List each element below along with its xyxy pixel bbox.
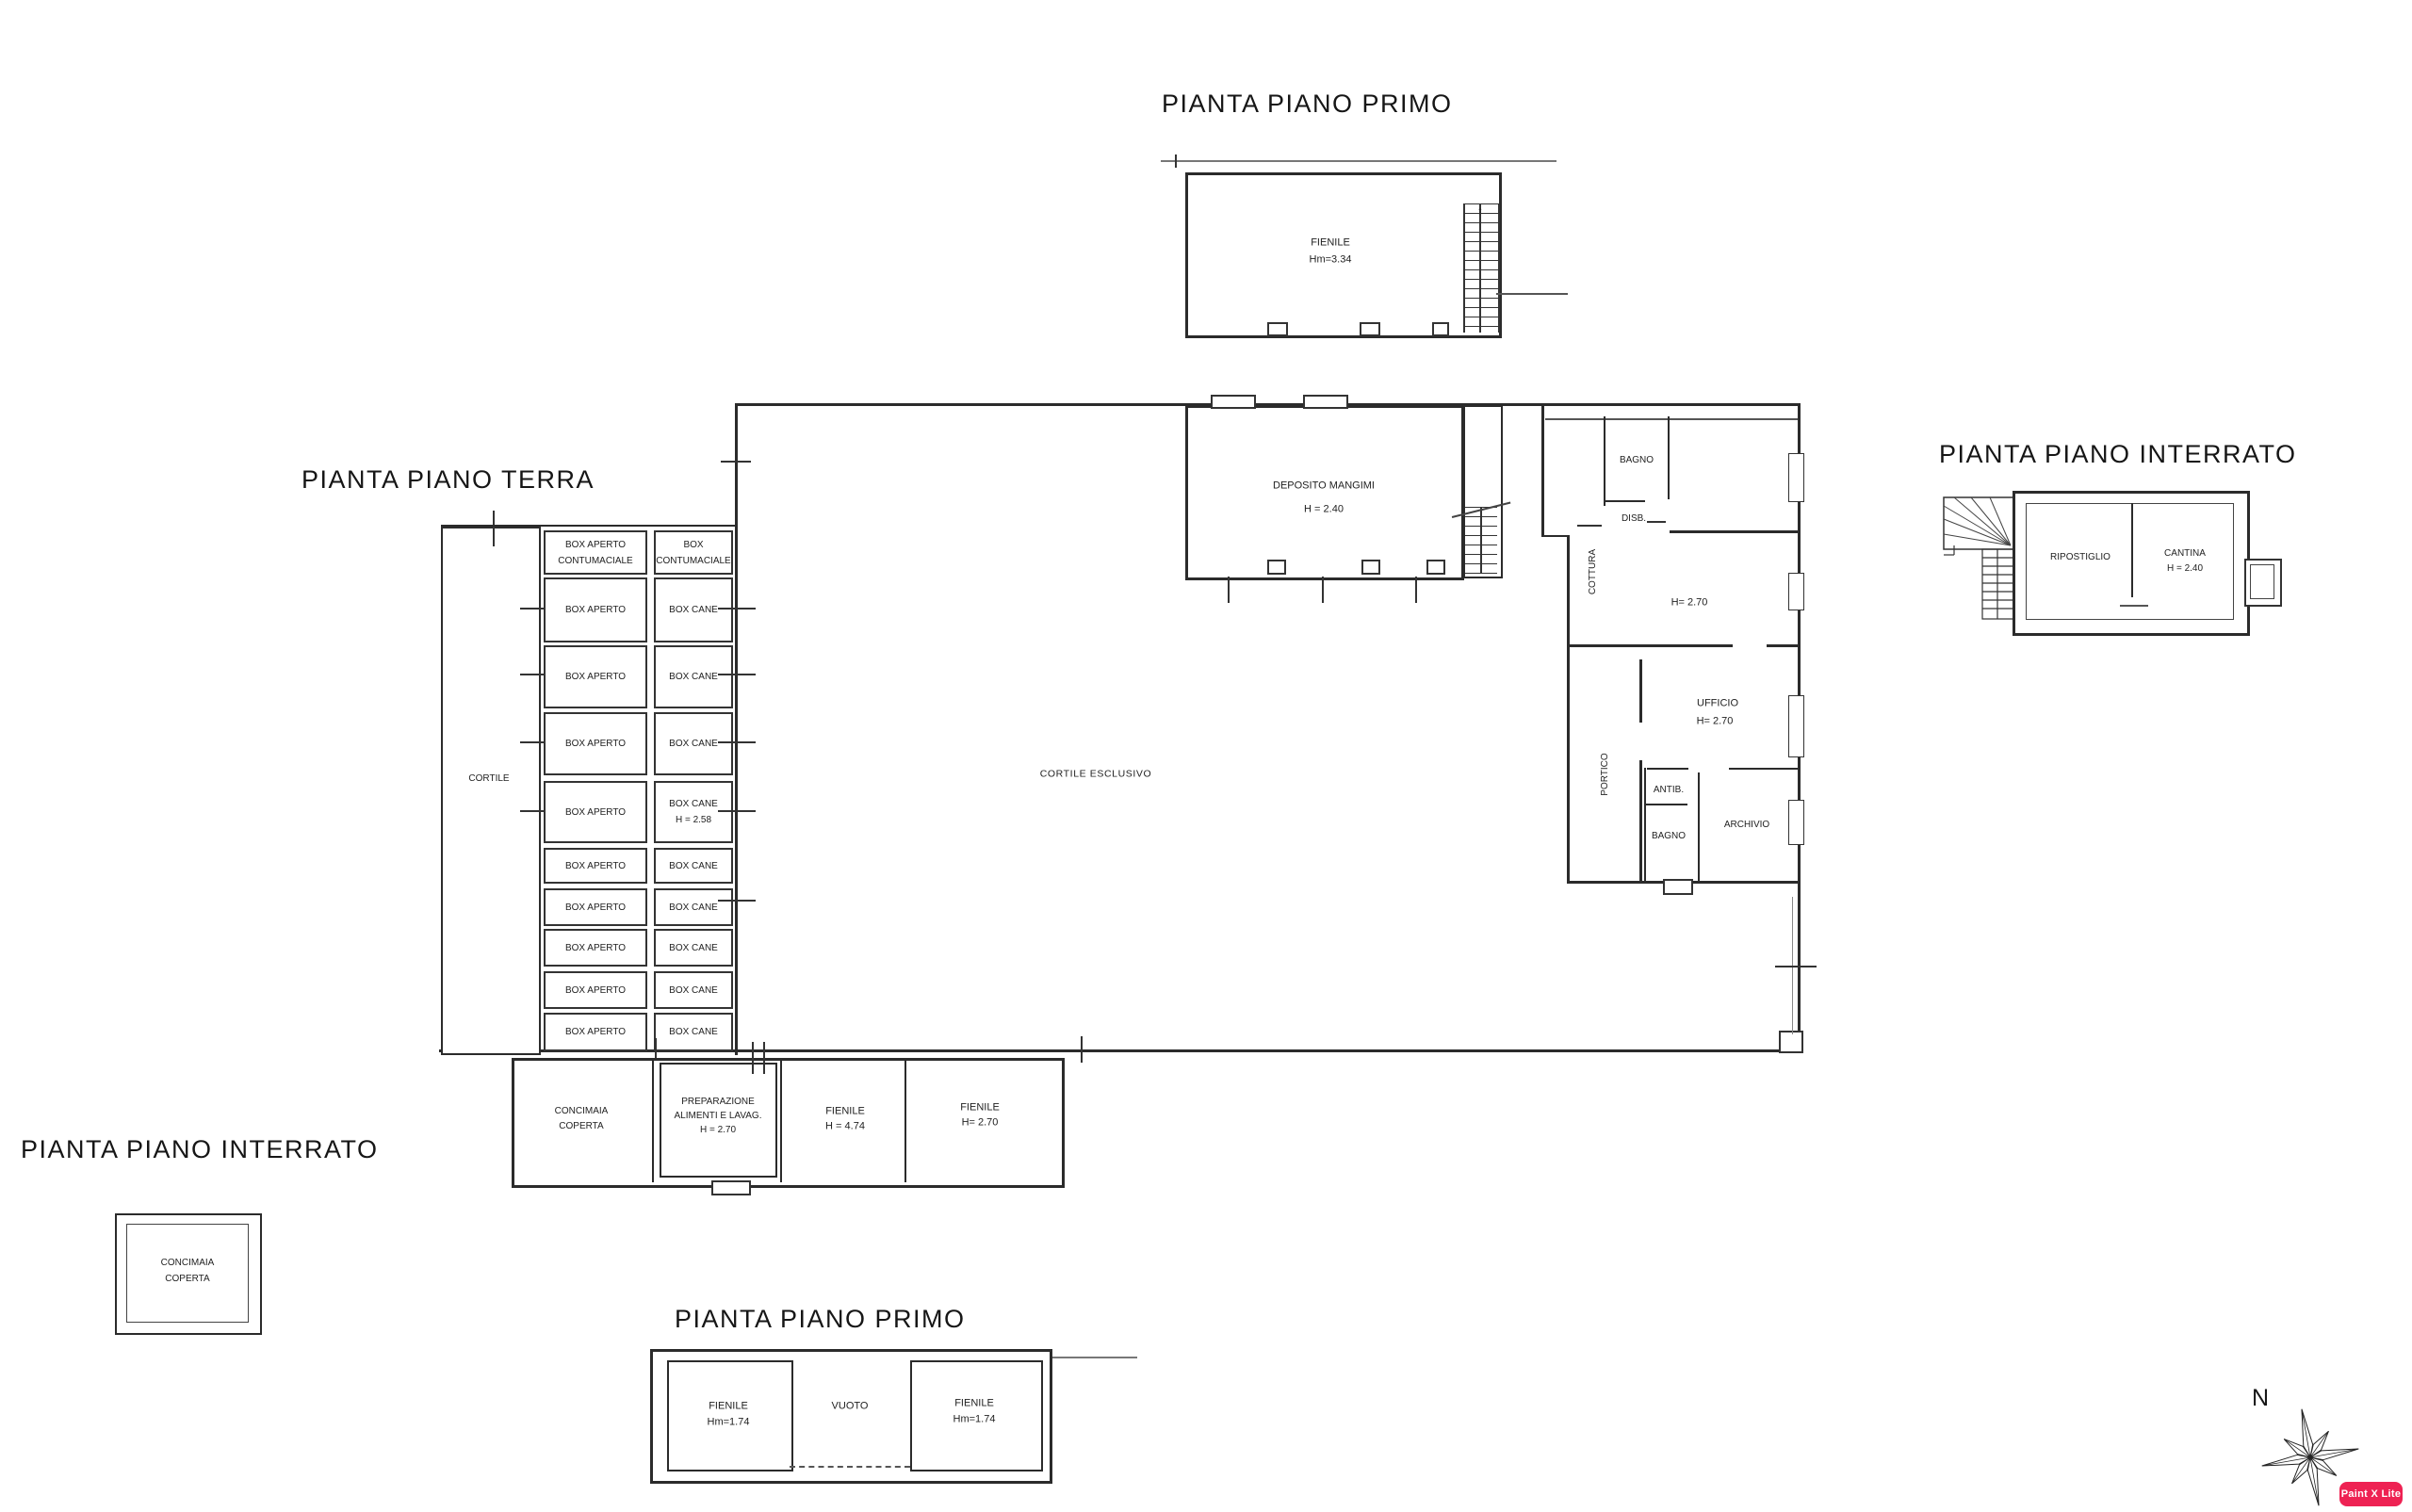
- title-bottom-piano-primo: PIANTA PIANO PRIMO: [675, 1305, 966, 1334]
- room-label: FIENILE: [960, 1100, 1000, 1114]
- wall-south: [650, 1481, 1052, 1484]
- title-piano-terra: PIANTA PIANO TERRA: [301, 465, 595, 495]
- wall-west: [650, 1349, 653, 1484]
- stall-row: BOX APERTO BOX CANE: [544, 712, 733, 775]
- box-cane-room: BOX CANE: [654, 1013, 733, 1051]
- wall-archivio-west: [1698, 772, 1700, 883]
- box-aperto-room: BOX APERTO: [544, 781, 647, 843]
- room-label: COTTURA: [1587, 549, 1600, 594]
- room-height-label: Hm=1.74: [953, 1412, 996, 1426]
- pilaster: [1432, 322, 1449, 336]
- wall-divider: [780, 1058, 782, 1182]
- vuoto-dashed-edge: [790, 1466, 910, 1468]
- wall-stalls-north: [441, 525, 735, 527]
- box-cane-room: BOXCONTUMACIALE: [654, 530, 733, 575]
- room-height-label: H= 2.70: [1697, 714, 1734, 728]
- room-label: CONCIMAIA: [161, 1257, 215, 1270]
- room-label: DISB.: [1622, 512, 1646, 526]
- stall-row: BOX APERTO BOX CANE: [544, 929, 733, 967]
- box-aperto-room: BOX APERTO: [544, 971, 647, 1009]
- box-aperto-room: BOX APERTO: [544, 1013, 647, 1051]
- wall-bagno-east: [1668, 416, 1670, 499]
- wall-portico-east-a: [1639, 659, 1642, 723]
- door-line: [2120, 605, 2148, 607]
- pilaster: [1211, 395, 1256, 409]
- window-tick: [718, 608, 756, 610]
- window-tick: [763, 1042, 765, 1074]
- room-height-label: Hm=1.74: [708, 1415, 750, 1429]
- stall-row: BOX APERTO BOX CANE: [544, 577, 733, 642]
- room-height-label: H = 4.74: [825, 1119, 865, 1133]
- stall-row: BOX APERTOCONTUMACIALE BOXCONTUMACIALE: [544, 530, 733, 575]
- window-tick: [520, 674, 545, 675]
- room-label: ANTIB.: [1654, 784, 1684, 797]
- room-label: COPERTA: [165, 1273, 209, 1286]
- box-cane-room: BOX CANE: [654, 712, 733, 775]
- room-label: FIENILE: [709, 1399, 748, 1413]
- stall-row: BOX APERTO BOX CANE: [544, 645, 733, 708]
- reference-tick: [1175, 154, 1177, 168]
- room-label: PORTICO: [1599, 753, 1612, 795]
- box-aperto-room: BOX APERTO: [544, 929, 647, 967]
- wall-extension-line: [1496, 293, 1568, 295]
- pilaster: [1267, 560, 1286, 575]
- pilaster: [1361, 560, 1380, 575]
- box-aperto-room: BOX APERTO: [544, 888, 647, 926]
- stall-row: BOX APERTO BOX CANE: [544, 888, 733, 926]
- wall-room-ne-south: [1670, 530, 1800, 533]
- window-tick: [718, 900, 756, 902]
- window-tick: [718, 810, 756, 812]
- wall-antib-north: [1647, 768, 1688, 770]
- floor-plan-sheet: PIANTA PIANO PRIMO PIANTA PIANO TERRA PI…: [0, 0, 2412, 1512]
- staircase-midline: [1479, 203, 1481, 333]
- room-label: COPERTA: [559, 1120, 603, 1133]
- window-tick: [520, 741, 545, 743]
- wall-bagno-south: [1604, 500, 1645, 502]
- window-tick: [718, 674, 756, 675]
- room-height-label: H = 2.40: [1304, 502, 1344, 516]
- window: [1788, 695, 1804, 757]
- wall-divider: [652, 1058, 654, 1182]
- stall-row: BOX APERTO BOX CANEH = 2.58: [544, 781, 733, 843]
- wall-portico-east-b: [1639, 760, 1642, 883]
- wall-wing-inner-north: [1545, 418, 1798, 420]
- room-label: FIENILE: [825, 1104, 865, 1118]
- pilaster: [1360, 322, 1380, 336]
- window-tick: [520, 810, 545, 812]
- window-tick: [1322, 577, 1324, 603]
- title-right-piano-interrato: PIANTA PIANO INTERRATO: [1939, 440, 2297, 469]
- title-bottom-left-piano-interrato: PIANTA PIANO INTERRATO: [21, 1135, 379, 1164]
- wall-bagno-low-west: [1644, 768, 1646, 883]
- reference-line: [1161, 160, 1556, 162]
- wall-step: [1541, 535, 1570, 537]
- window: [1788, 800, 1804, 845]
- door-tick: [493, 511, 495, 546]
- box-aperto-room: BOX APERTOCONTUMACIALE: [544, 530, 647, 575]
- wall-wing-west-lower: [1567, 535, 1570, 884]
- window-tick: [1415, 577, 1417, 603]
- box-cane-room: BOX CANE: [654, 888, 733, 926]
- paint-x-lite-watermark: Paint X Lite: [2339, 1482, 2403, 1506]
- wall-cantina-divider: [2131, 503, 2133, 597]
- winder-staircase: [1943, 496, 2016, 621]
- room-height-label: H = 2.70: [700, 1124, 736, 1137]
- wall-kitchen-south-b: [1767, 644, 1801, 647]
- window-tick: [721, 461, 751, 463]
- door-tick: [1647, 521, 1666, 523]
- room-label: ARCHIVIO: [1724, 819, 1769, 832]
- window-well-inner: [2250, 564, 2274, 599]
- wall-bagno-west: [1604, 416, 1605, 506]
- window-tick: [718, 741, 756, 743]
- courtyard-label: CORTILE ESCLUSIVO: [1040, 768, 1152, 782]
- room-label: CONCIMAIA: [555, 1105, 609, 1118]
- box-aperto-room: BOX APERTO: [544, 645, 647, 708]
- box-cane-room: BOX CANE: [654, 971, 733, 1009]
- window-tick: [520, 608, 545, 610]
- window: [1788, 573, 1804, 610]
- staircase-midline: [1480, 507, 1482, 574]
- reference-line: [1052, 1357, 1137, 1358]
- room-label: FIENILE: [1311, 236, 1350, 250]
- door-step: [1663, 879, 1693, 895]
- pilaster: [1267, 322, 1288, 336]
- box-aperto-room: BOX APERTO: [544, 577, 647, 642]
- box-cane-room: BOX CANEH = 2.58: [654, 781, 733, 843]
- wall-north: [650, 1349, 1052, 1352]
- room-label: DEPOSITO MANGIMI: [1273, 479, 1375, 493]
- room-height-label: H= 2.70: [962, 1115, 999, 1130]
- room-label: ALIMENTI E LAVAG.: [675, 1110, 762, 1123]
- courtyard-label: CORTILE: [468, 772, 509, 786]
- box-cane-room: BOX CANE: [654, 848, 733, 884]
- room-label: FIENILE: [954, 1396, 994, 1410]
- box-cane-room: BOX CANE: [654, 645, 733, 708]
- wall-antib-south: [1644, 804, 1687, 805]
- pilaster: [1303, 395, 1348, 409]
- room-label: PREPARAZIONE: [681, 1096, 755, 1109]
- box-aperto-room: BOX APERTO: [544, 848, 647, 884]
- stair-up-arrow-icon: ↑: [1477, 203, 1483, 219]
- cortile-outline: [441, 527, 541, 1055]
- door-tick: [1577, 525, 1602, 527]
- corner-pillar: [1779, 1031, 1803, 1053]
- title-top-piano-primo: PIANTA PIANO PRIMO: [1162, 89, 1453, 119]
- wall-divider: [904, 1058, 906, 1182]
- stall-row: BOX APERTO BOX CANE: [544, 1013, 733, 1051]
- door-step: [711, 1180, 751, 1195]
- window-tick: [1228, 577, 1230, 603]
- box-aperto-room: BOX APERTO: [544, 712, 647, 775]
- room-label: VUOTO: [832, 1399, 869, 1413]
- room-label: UFFICIO: [1697, 696, 1738, 710]
- room-height-label: H = 2.40: [2167, 562, 2203, 576]
- pilaster: [1426, 560, 1445, 575]
- wall-wing-west-upper: [1541, 403, 1544, 537]
- room-label: BAGNO: [1652, 830, 1686, 843]
- window: [1788, 453, 1804, 502]
- window-tick: [752, 1042, 754, 1074]
- room-height-label: H= 2.70: [1671, 595, 1708, 610]
- staircase: [1463, 203, 1500, 333]
- wall-east: [1050, 1349, 1052, 1484]
- window-tick: [1775, 966, 1817, 967]
- room-label: CANTINA: [2164, 547, 2206, 561]
- wall-archivio-north: [1729, 768, 1801, 770]
- wall-courtyard-west: [735, 403, 738, 1055]
- room-height-label: Hm=3.34: [1310, 252, 1352, 267]
- stall-row: BOX APERTO BOX CANE: [544, 848, 733, 884]
- wall-kitchen-south-a: [1569, 644, 1733, 647]
- box-cane-room: BOX CANE: [654, 577, 733, 642]
- room-label: BAGNO: [1620, 454, 1654, 467]
- box-cane-room: BOX CANE: [654, 929, 733, 967]
- stall-row: BOX APERTO BOX CANE: [544, 971, 733, 1009]
- window-tick: [1081, 1036, 1083, 1063]
- room-label: RIPOSTIGLIO: [2050, 551, 2110, 564]
